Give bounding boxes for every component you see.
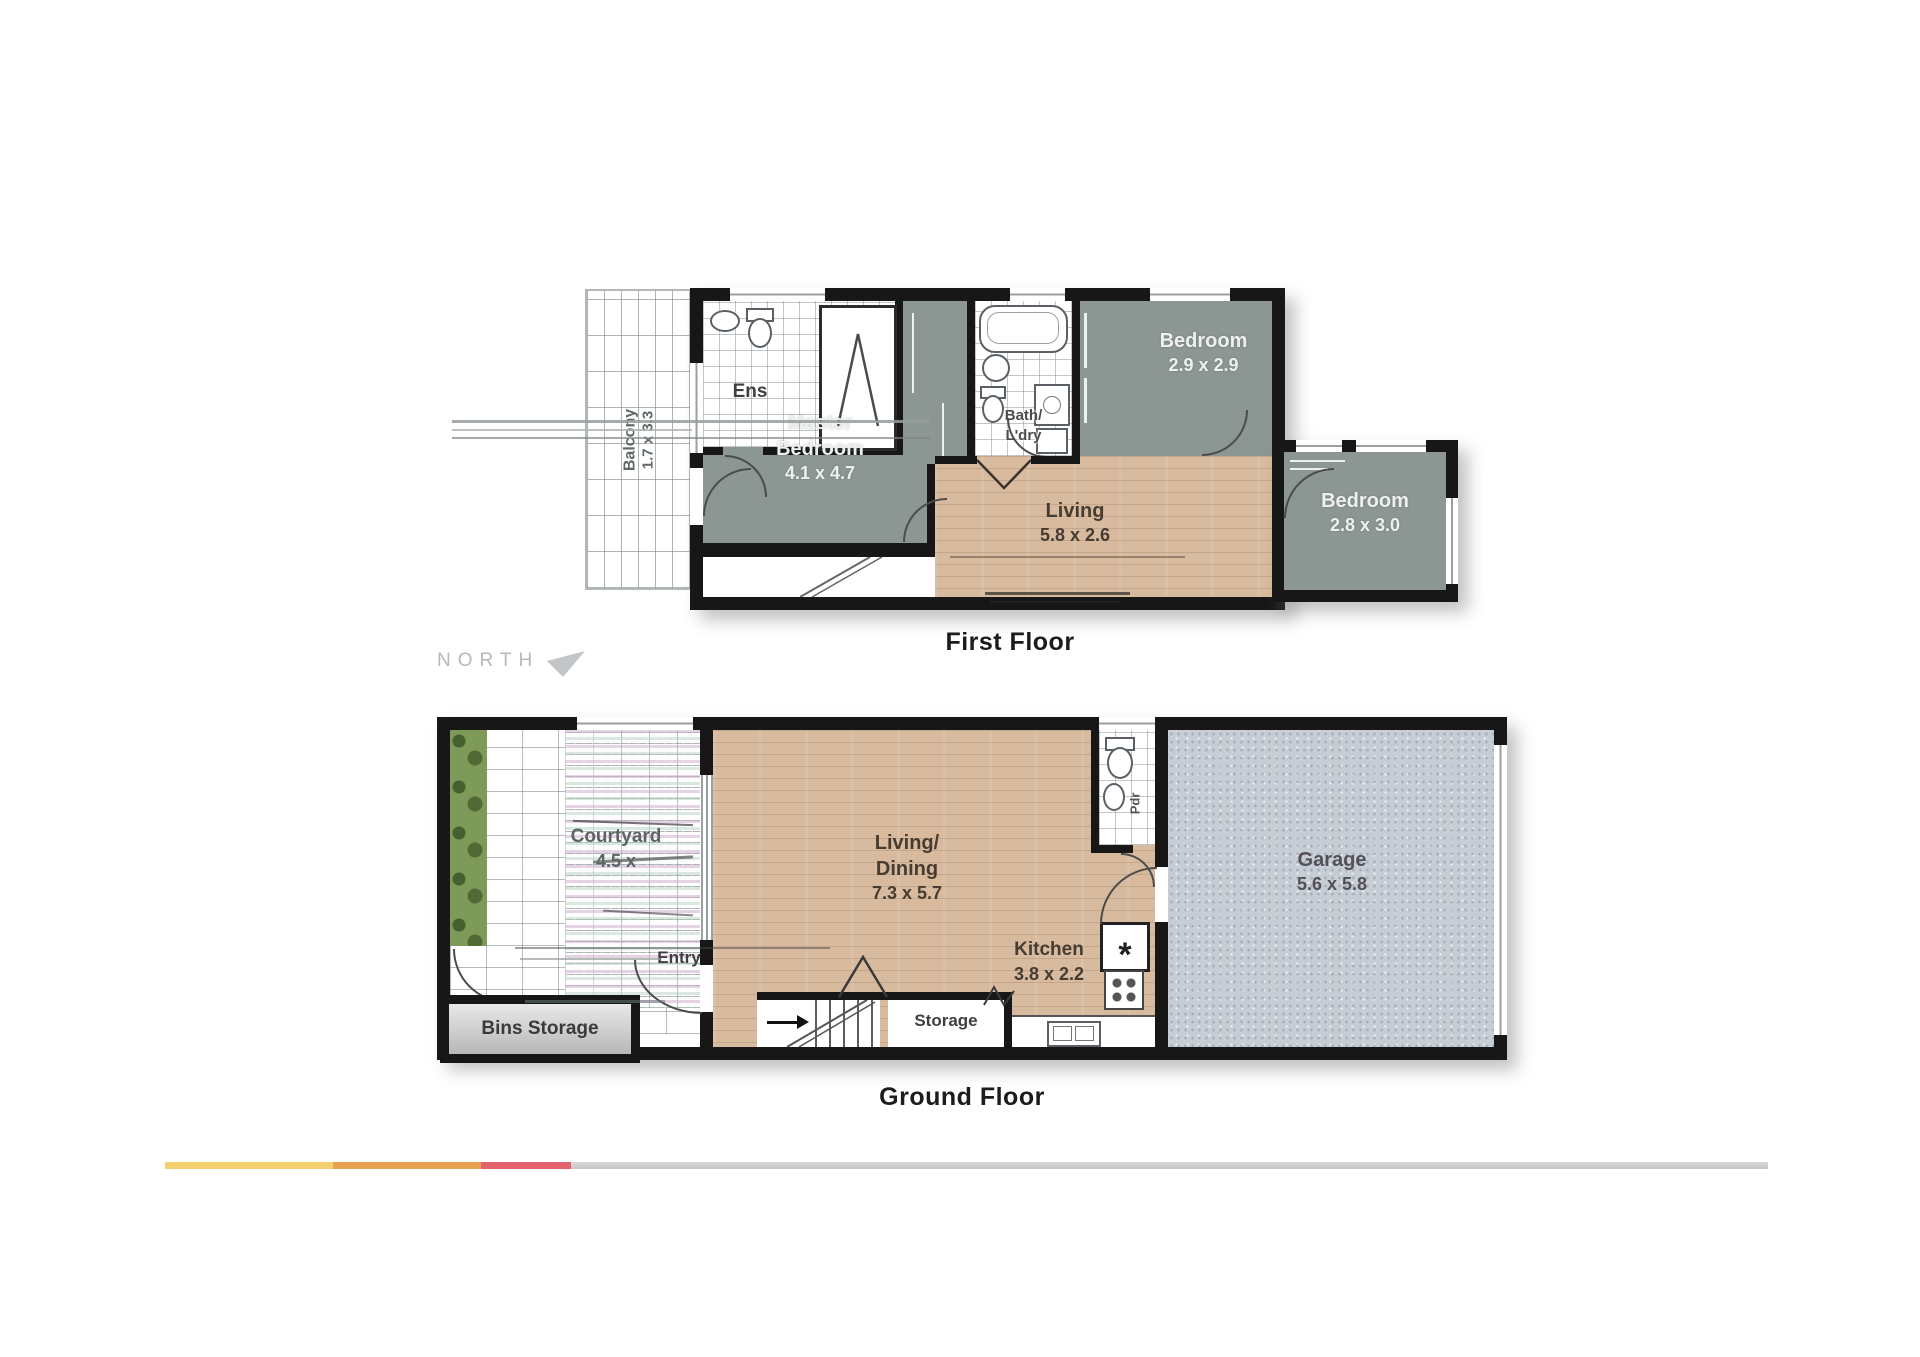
sliding-door-track bbox=[706, 775, 708, 940]
sink-bowl bbox=[1053, 1026, 1072, 1041]
double-door-icon bbox=[977, 458, 1031, 490]
courtyard-label: Courtyard 4.5 x bbox=[532, 825, 700, 873]
robe-door-line bbox=[1084, 313, 1087, 368]
window-marker bbox=[730, 288, 825, 301]
window-marker bbox=[1446, 498, 1458, 584]
wall bbox=[1031, 456, 1080, 464]
first-floor-caption: First Floor bbox=[860, 628, 1160, 657]
living-dining-line2: Dining bbox=[827, 856, 987, 882]
bathtub-inner bbox=[987, 312, 1059, 344]
north-arrow-icon bbox=[545, 649, 587, 679]
glitch-artifact bbox=[452, 437, 930, 439]
window-marker bbox=[1296, 440, 1342, 452]
living-first-size: 5.8 x 2.6 bbox=[995, 524, 1155, 547]
sliding-door-track bbox=[701, 775, 703, 940]
bedroom3-wing: Bedroom 2.8 x 3.0 bbox=[1272, 440, 1458, 602]
bedroom2-name: Bedroom bbox=[1135, 328, 1272, 354]
stair-direction-arrow-icon bbox=[797, 1015, 809, 1029]
robe-door-line bbox=[1084, 378, 1087, 423]
footer-bar-segment-orange bbox=[333, 1162, 481, 1169]
door-arc bbox=[903, 498, 947, 542]
stairs-first bbox=[800, 557, 935, 597]
pantry-box: * bbox=[1100, 922, 1150, 972]
wall bbox=[700, 1012, 713, 1047]
glitch-artifact bbox=[950, 556, 1185, 558]
kitchen-counter bbox=[1012, 1015, 1155, 1049]
wall bbox=[703, 543, 935, 557]
bins-storage-box: Bins Storage bbox=[440, 995, 640, 1063]
toilet-icon bbox=[1107, 747, 1133, 779]
footer-bar-segment-gray bbox=[571, 1162, 1768, 1169]
stair-direction-line bbox=[767, 1021, 797, 1024]
wall bbox=[1272, 590, 1458, 602]
bifold-door-icon bbox=[982, 983, 1016, 1007]
garage-door-marker bbox=[1494, 745, 1507, 1035]
window-marker bbox=[577, 717, 693, 730]
wall bbox=[703, 447, 723, 455]
wall bbox=[1091, 845, 1133, 853]
bathtub-icon bbox=[979, 305, 1068, 353]
balcony-name: Balcony bbox=[622, 345, 640, 535]
floorplan-page: Balcony 1.7 x 3.3 Ens bbox=[0, 0, 1920, 1357]
stair-rails bbox=[800, 557, 935, 597]
powder-label: Pdr bbox=[1128, 788, 1145, 818]
corridor bbox=[703, 557, 800, 597]
window-marker bbox=[1099, 717, 1155, 730]
master-line1: Master bbox=[730, 410, 910, 436]
garage-size: 5.6 x 5.8 bbox=[1247, 873, 1417, 896]
glitch-artifact bbox=[990, 601, 1120, 603]
garage-label: Garage 5.6 x 5.8 bbox=[1247, 847, 1417, 896]
garage-name: Garage bbox=[1247, 847, 1417, 873]
glitch-artifact bbox=[515, 947, 830, 949]
balcony-size: 1.7 x 3.3 bbox=[640, 345, 657, 535]
master-line2: Bedroom bbox=[730, 436, 910, 462]
living-dining-line1: Living/ bbox=[827, 830, 987, 856]
bedroom3-label: Bedroom 2.8 x 3.0 bbox=[1286, 488, 1444, 537]
footer-bar-segment-red bbox=[481, 1162, 571, 1169]
courtyard-name: Courtyard bbox=[532, 825, 700, 850]
living-first-label: Living 5.8 x 2.6 bbox=[995, 498, 1155, 547]
robe-door-line bbox=[1290, 460, 1345, 462]
door-arc bbox=[1202, 410, 1248, 456]
bedroom2-label: Bedroom 2.9 x 2.9 bbox=[1135, 328, 1272, 377]
footer-bar bbox=[165, 1162, 1768, 1169]
robe-door-line bbox=[912, 313, 914, 393]
wall bbox=[700, 730, 713, 775]
ground-floor-caption: Ground Floor bbox=[812, 1083, 1112, 1112]
wall bbox=[1272, 440, 1284, 602]
ensuite-label: Ens bbox=[720, 380, 780, 405]
sink-icon bbox=[982, 354, 1010, 382]
kitchen-sink-icon bbox=[1047, 1021, 1101, 1047]
storage-label: Storage bbox=[890, 1010, 1002, 1032]
sink-icon bbox=[710, 310, 740, 332]
window-marker bbox=[1356, 440, 1426, 452]
window-marker bbox=[1010, 288, 1065, 301]
kitchen-label: Kitchen 3.8 x 2.2 bbox=[989, 938, 1109, 986]
bedroom2-size: 2.9 x 2.9 bbox=[1135, 354, 1272, 377]
sink-icon bbox=[1103, 783, 1125, 811]
courtyard-size: 4.5 x bbox=[532, 850, 700, 873]
cooktop-icon bbox=[1104, 970, 1144, 1010]
toilet-icon bbox=[748, 318, 772, 348]
balcony-area: Balcony 1.7 x 3.3 bbox=[585, 289, 693, 590]
bedroom3-name: Bedroom bbox=[1286, 488, 1444, 514]
glitch-artifact bbox=[520, 958, 660, 960]
living-first-name: Living bbox=[995, 498, 1155, 524]
window-marker bbox=[690, 363, 703, 453]
glitch-artifact bbox=[452, 429, 692, 431]
window-marker bbox=[1150, 288, 1230, 301]
balcony-door-opening bbox=[690, 468, 703, 525]
door-arc bbox=[703, 468, 751, 516]
glitch-artifact bbox=[452, 420, 930, 423]
bifold-door-icon bbox=[837, 955, 889, 999]
stairs-ground bbox=[757, 1000, 880, 1047]
living-dining-label: Living/ Dining 7.3 x 5.7 bbox=[827, 830, 987, 905]
wall bbox=[935, 456, 977, 464]
wall bbox=[1091, 730, 1099, 853]
master-size: 4.1 x 4.7 bbox=[730, 462, 910, 485]
wall bbox=[690, 597, 1285, 610]
garden-bed bbox=[450, 730, 487, 946]
north-label: NORTH bbox=[437, 650, 539, 672]
bins-storage-label: Bins Storage bbox=[481, 1017, 598, 1042]
sink-bowl bbox=[1075, 1026, 1094, 1041]
first-floor-plan: Ens Bath/ L'dry Bedroom 2.9 x 2.9 bbox=[690, 288, 1285, 610]
living-dining-size: 7.3 x 5.7 bbox=[827, 882, 987, 905]
glitch-artifact bbox=[525, 1000, 665, 1003]
bedroom3-size: 2.8 x 3.0 bbox=[1286, 514, 1444, 537]
footer-bar-segment-yellow bbox=[165, 1162, 333, 1169]
glitch-artifact bbox=[985, 592, 1130, 595]
kitchen-name: Kitchen bbox=[989, 938, 1109, 963]
balcony-label: Balcony 1.7 x 3.3 bbox=[622, 345, 657, 535]
